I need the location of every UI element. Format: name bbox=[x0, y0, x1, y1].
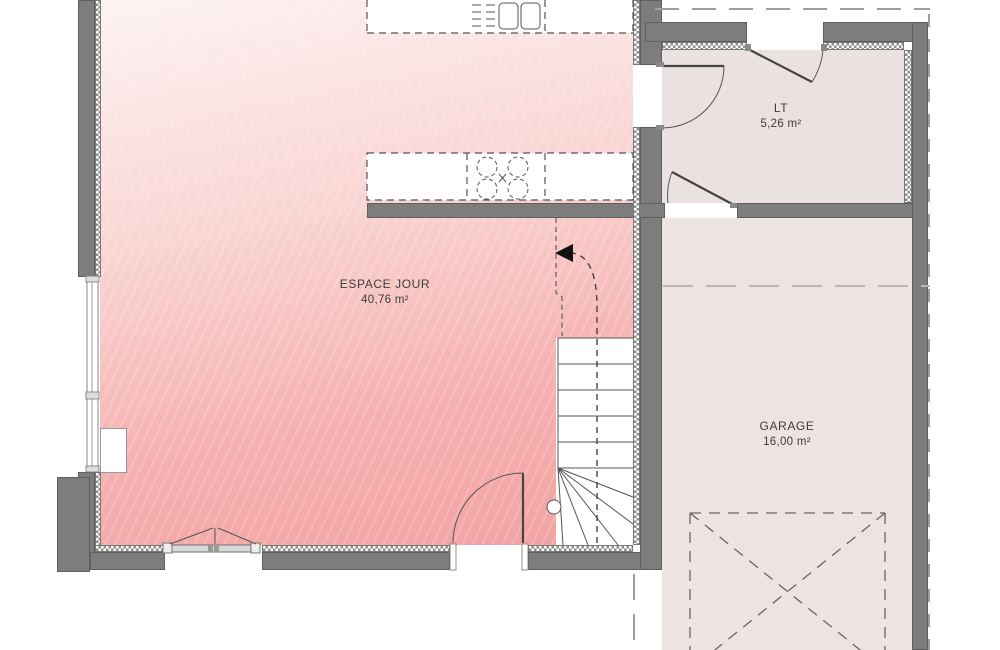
left-window bbox=[86, 276, 99, 472]
wall-bottom-2 bbox=[262, 552, 450, 570]
lt-garage-door-jamb bbox=[730, 203, 737, 208]
kitchen-island-counter bbox=[367, 153, 633, 200]
room-label-garage: GARAGE 16,00 m² bbox=[707, 418, 867, 450]
room-area: 40,76 m² bbox=[285, 292, 485, 308]
hatch-left-lower bbox=[95, 472, 101, 552]
wall-corner-pilaster bbox=[57, 477, 90, 572]
room-label-lt: LT 5,26 m² bbox=[731, 100, 831, 132]
kitchen-counter-top bbox=[367, 0, 633, 33]
entry-door-jamb bbox=[450, 544, 456, 570]
hatch-right-upper bbox=[633, 0, 640, 65]
hatch-bottom-2 bbox=[262, 545, 450, 552]
room-name: ESPACE JOUR bbox=[285, 276, 485, 292]
hatch-bottom-1 bbox=[95, 545, 165, 552]
room-area: 16,00 m² bbox=[707, 434, 867, 450]
bottom-window-glazing bbox=[166, 545, 256, 552]
hatch-bottom-3 bbox=[528, 545, 633, 552]
room-name: GARAGE bbox=[707, 418, 867, 434]
hatch-lt-right bbox=[904, 50, 912, 203]
left-window-frame bbox=[87, 278, 98, 470]
radiator bbox=[100, 428, 127, 473]
hatch-right-main bbox=[633, 127, 640, 545]
bottom-window-center-lock bbox=[214, 545, 219, 552]
hatch-lt-top-left bbox=[662, 42, 747, 50]
wall-divider-left bbox=[367, 203, 665, 218]
room-label-espace-jour: ESPACE JOUR 40,76 m² bbox=[285, 276, 485, 308]
wall-left-upper bbox=[78, 0, 95, 277]
stair-shaft bbox=[556, 338, 633, 545]
wall-lt-top-left bbox=[645, 22, 747, 42]
wall-right-exterior bbox=[912, 22, 928, 650]
wall-divider-right bbox=[737, 203, 928, 218]
room-espace-jour-floor bbox=[100, 0, 633, 545]
hatch-lt-top-right bbox=[823, 42, 904, 50]
room-name: LT bbox=[731, 100, 831, 116]
bottom-window-center-lock bbox=[208, 545, 213, 552]
hatch-left-upper bbox=[95, 0, 101, 277]
wall-right-of-espace-main bbox=[640, 127, 662, 570]
room-area: 5,26 m² bbox=[731, 116, 831, 132]
left-window-mullion bbox=[86, 392, 99, 399]
floor-plan: ESPACE JOUR 40,76 m² LT 5,26 m² GARAGE 1… bbox=[0, 0, 1000, 650]
wall-bottom-1 bbox=[90, 552, 165, 570]
